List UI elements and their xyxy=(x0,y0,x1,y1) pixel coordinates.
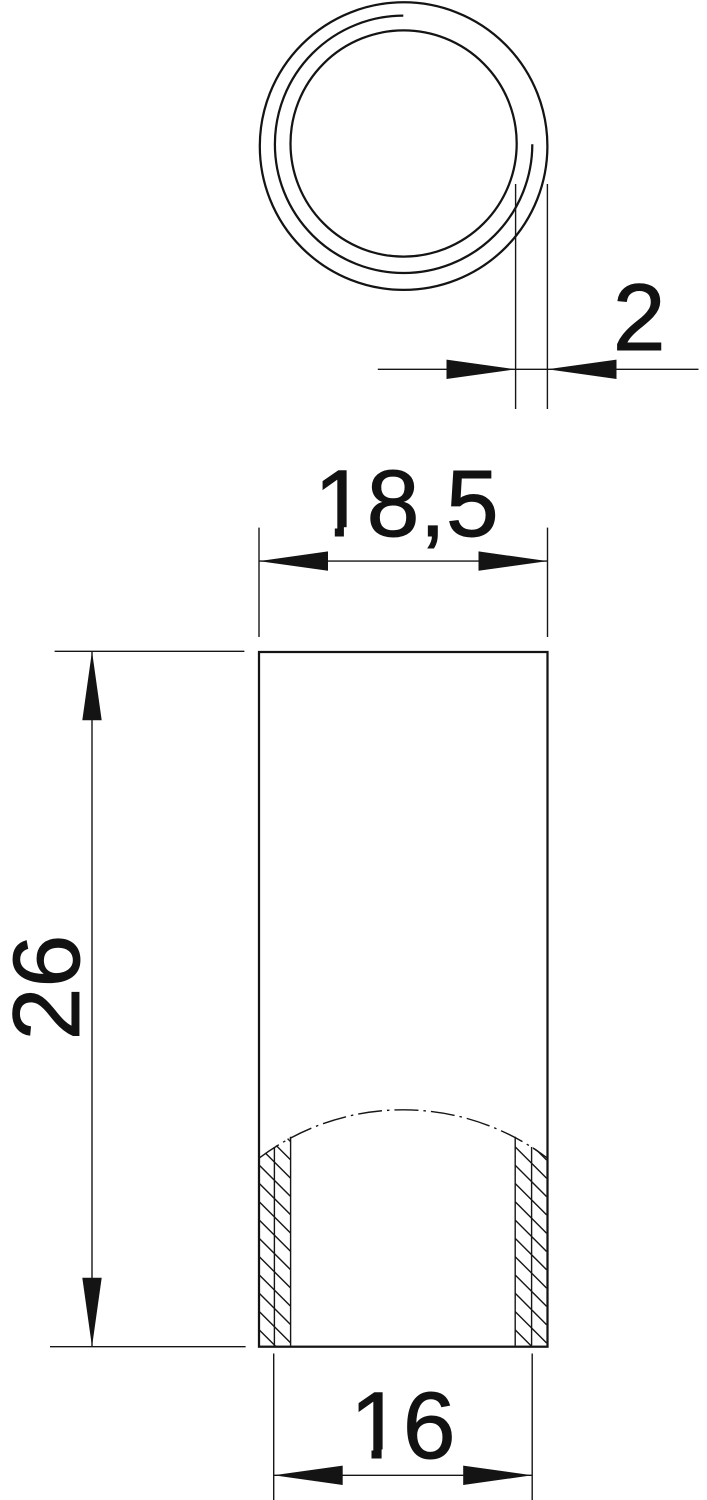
svg-text:26: 26 xyxy=(0,935,100,1041)
svg-text:2: 2 xyxy=(613,265,666,371)
svg-text:18,5: 18,5 xyxy=(314,451,499,557)
svg-text:16: 16 xyxy=(350,1373,456,1479)
